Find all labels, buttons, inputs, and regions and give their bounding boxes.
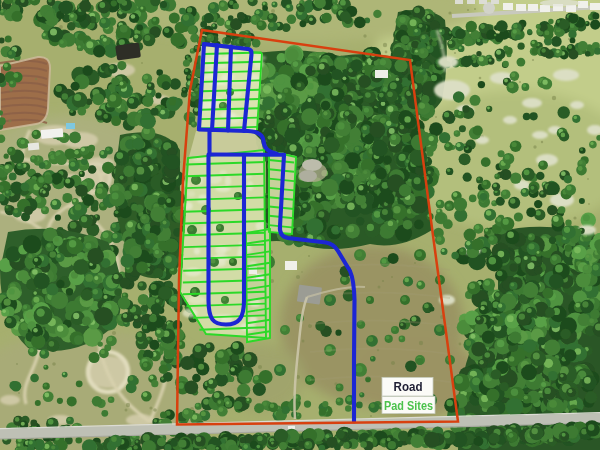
svg-text:Pad Sites: Pad Sites — [384, 398, 433, 413]
svg-text:Road: Road — [394, 380, 423, 394]
